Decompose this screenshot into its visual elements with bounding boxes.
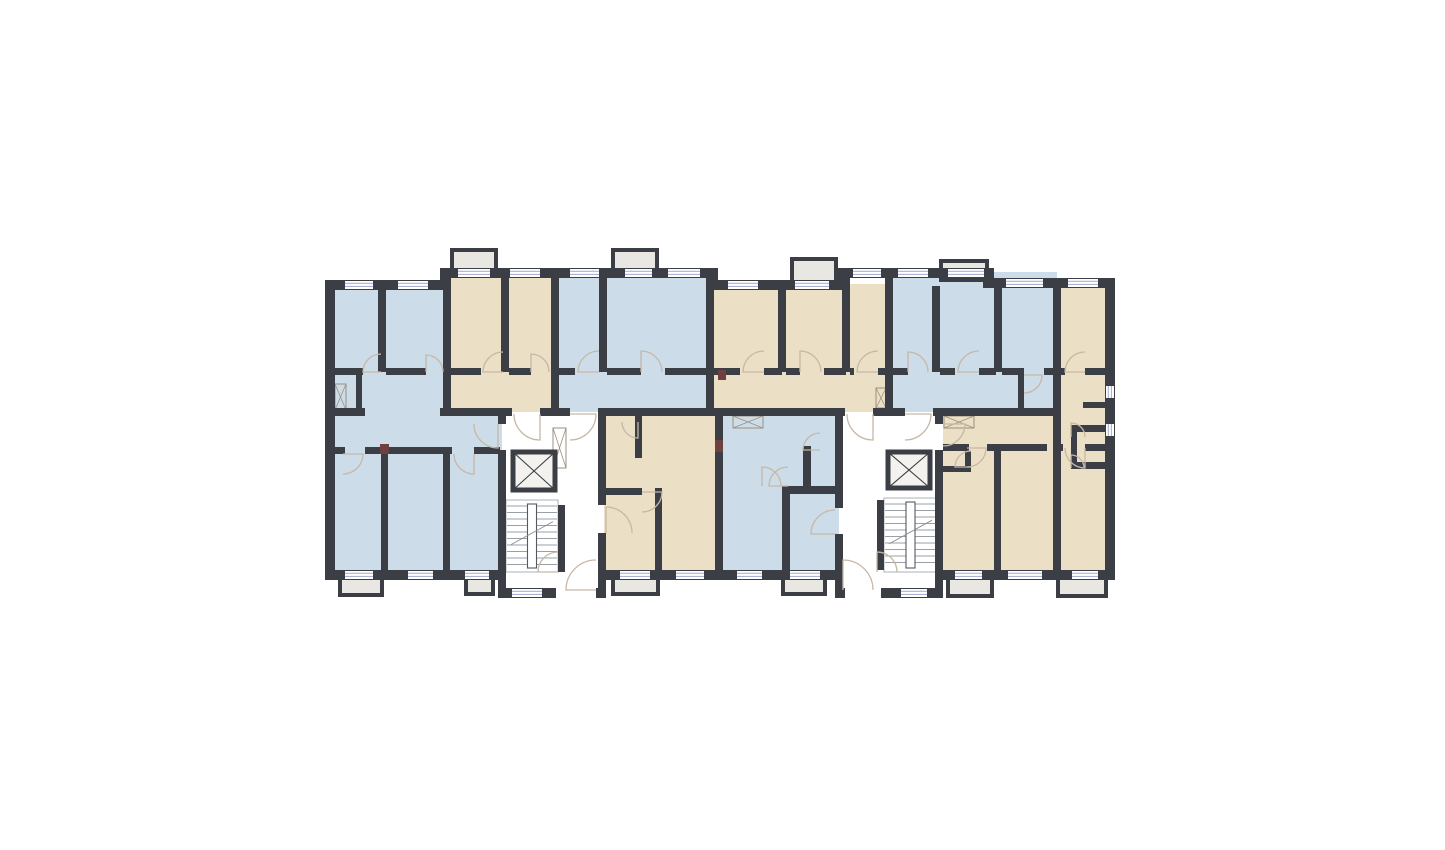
wall-segment (356, 374, 362, 410)
window (1106, 386, 1114, 398)
balcony (792, 259, 836, 282)
wall-segment (1053, 444, 1063, 451)
wall-segment (878, 368, 887, 375)
accent-block (718, 370, 726, 380)
window-gap (1008, 571, 1042, 579)
wall-segment (885, 268, 893, 416)
window (345, 281, 373, 289)
wall-segment (850, 368, 854, 375)
balcony (613, 250, 657, 270)
window-gap (676, 571, 704, 579)
window-gap (1072, 571, 1098, 579)
window (1008, 571, 1042, 579)
accent-block (380, 444, 389, 454)
wall-segment (994, 286, 1002, 372)
wall-segment (335, 447, 345, 454)
elevator (888, 452, 930, 488)
wall-segment (935, 416, 943, 424)
wall-segment (606, 488, 642, 495)
window-gap (795, 281, 829, 289)
window (1006, 279, 1043, 287)
wall-segment (596, 588, 606, 598)
wall-segment (1085, 444, 1105, 451)
balcony (1058, 578, 1106, 596)
wall-segment (979, 368, 996, 375)
wall-segment (551, 268, 559, 416)
window (1106, 424, 1114, 436)
window-gap (345, 281, 373, 289)
wall-segment (940, 368, 955, 375)
wall-segment (325, 280, 335, 580)
stairwell (884, 498, 937, 572)
window-gap (737, 571, 762, 579)
unit-3 (555, 272, 710, 412)
window (510, 269, 540, 277)
wall-segment (451, 368, 481, 375)
wall-segment (386, 368, 426, 375)
balcony (466, 578, 493, 594)
window (901, 589, 927, 597)
window-gap (398, 281, 428, 289)
wall-segment (803, 446, 811, 488)
wall-segment (443, 268, 451, 416)
wall-segment (655, 488, 662, 572)
wall-segment (378, 288, 386, 372)
window-gap (955, 571, 982, 579)
wall-segment (935, 450, 943, 598)
balcony (948, 578, 992, 596)
wall-segment (665, 368, 710, 375)
window-gap (345, 571, 373, 579)
wall-segment (381, 454, 388, 572)
wall-segment (498, 450, 506, 598)
wall-segment (983, 268, 994, 288)
window (620, 571, 650, 579)
window-gap (510, 269, 540, 277)
window-gap (853, 269, 881, 277)
window-gap (790, 571, 820, 579)
window-gap (408, 571, 433, 579)
wall-segment (558, 505, 565, 572)
wall-segment (1085, 368, 1105, 375)
wall-segment (715, 416, 723, 570)
window (795, 281, 829, 289)
wall-segment (443, 454, 450, 572)
wall-segment (1083, 402, 1105, 408)
wall-segment (1071, 432, 1077, 462)
stair-rail (528, 504, 537, 568)
window-gap (901, 589, 927, 597)
wall-segment (598, 416, 606, 505)
wall-segment (1053, 278, 1061, 570)
elevator (513, 452, 555, 490)
wall-segment (987, 444, 1047, 451)
wall-segment (842, 276, 850, 372)
wall-segment (932, 286, 940, 372)
wall-segment (824, 368, 846, 375)
wall-segment (782, 486, 839, 494)
unit-4 (710, 284, 889, 412)
window-gap (570, 269, 599, 277)
wall-segment (599, 276, 607, 372)
window-gap (1106, 424, 1114, 436)
window-gap (898, 269, 928, 277)
window (668, 269, 700, 277)
window-gap (948, 269, 984, 277)
wall-segment (501, 276, 509, 372)
wall-segment (877, 500, 884, 570)
wall-segment (559, 368, 575, 375)
window (458, 269, 490, 277)
wall-segment (335, 368, 363, 375)
wall-segment (782, 486, 790, 570)
window (737, 571, 762, 579)
window (465, 571, 489, 579)
balcony (783, 578, 825, 594)
wall-segment (509, 368, 531, 375)
window-gap (465, 571, 489, 579)
stair-rail (906, 502, 915, 568)
window (408, 571, 433, 579)
balcony (452, 250, 496, 270)
window (570, 269, 599, 277)
wall-segment (764, 368, 782, 375)
window (345, 571, 373, 579)
wall-segment (325, 280, 448, 290)
balcony (613, 578, 658, 594)
wall-segment (607, 368, 641, 375)
window (898, 269, 928, 277)
window-gap (1106, 386, 1114, 398)
window (1068, 279, 1098, 287)
window-gap (512, 589, 542, 597)
window (398, 281, 428, 289)
floor-plan (0, 0, 1445, 850)
wall-segment (714, 368, 740, 375)
wall-segment (933, 408, 1053, 416)
wall-segment (498, 416, 506, 424)
window (676, 571, 704, 579)
wall-segment (598, 408, 715, 416)
window (728, 281, 758, 289)
wall-segment (1018, 368, 1024, 408)
wall-segment (365, 447, 452, 454)
window (1072, 571, 1098, 579)
window-gap (1006, 279, 1043, 287)
window (955, 571, 982, 579)
window-gap (1068, 279, 1098, 287)
stairwell (506, 500, 558, 572)
window (790, 571, 820, 579)
wall-segment (778, 288, 786, 372)
balcony (340, 578, 382, 595)
window (512, 589, 542, 597)
window (948, 269, 984, 277)
wall-segment (706, 268, 714, 416)
wall-segment (835, 416, 843, 508)
window-gap (458, 269, 490, 277)
window (853, 269, 881, 277)
window-gap (620, 571, 650, 579)
window-gap (728, 281, 758, 289)
wall-segment (1044, 368, 1053, 375)
window-gap (668, 269, 700, 277)
wall-segment (1071, 425, 1105, 432)
wall-segment (994, 451, 1001, 570)
window (625, 269, 652, 277)
wall-segment (893, 368, 908, 375)
accent-block (715, 440, 723, 452)
wall-segment (715, 408, 845, 416)
wall-segment (786, 368, 800, 375)
window-gap (625, 269, 652, 277)
floor-plan-canvas (0, 0, 1445, 850)
